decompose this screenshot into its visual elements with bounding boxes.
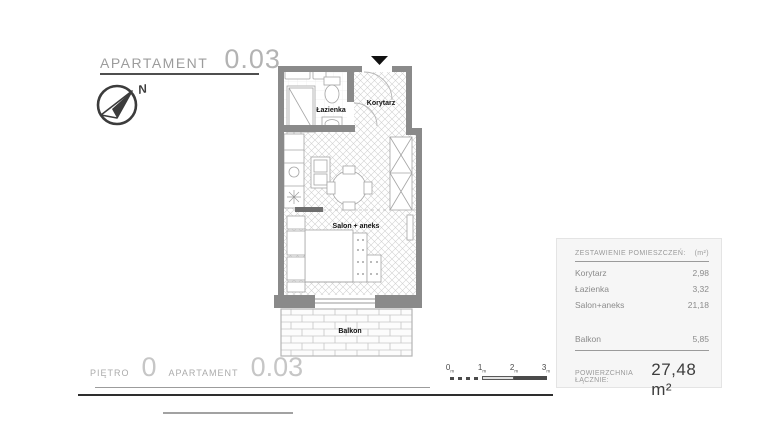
summary-header-label: ZESTAWIENIE POMIESZCZEŃ: — [575, 250, 686, 257]
row-value: 2,98 — [692, 268, 709, 278]
scale-tick-1: 1m — [475, 363, 489, 374]
footer-apartment-label: APARTAMENT — [169, 368, 239, 378]
summary-unit-header: (m²) — [695, 250, 709, 257]
wardrobe — [390, 137, 412, 210]
apartment-title: APARTAMENT 0.03 — [100, 44, 281, 75]
scale-segment-dark — [514, 376, 547, 380]
row-label: Balkon — [575, 334, 601, 344]
floor-plan: Łazienka Korytarz Salon + aneks Balkon — [265, 50, 465, 365]
row-value: 3,32 — [692, 284, 709, 294]
row-value: 5,85 — [692, 334, 709, 344]
summary-row-salon: Salon+aneks 21,18 — [575, 300, 709, 310]
total-label: POWIERZCHNIA ŁĄCZNIE: — [575, 370, 651, 384]
footer-apartment-value: 0.03 — [251, 352, 304, 383]
scale-tick-3: 3m — [539, 363, 553, 374]
scale-tick-0: 0m — [443, 363, 457, 374]
room-label-corridor: Korytarz — [367, 100, 396, 107]
scale-tick-2: 2m — [507, 363, 521, 374]
north-label: N — [137, 81, 149, 97]
balcony-window — [315, 299, 375, 303]
row-label: Korytarz — [575, 268, 607, 278]
summary-row-lazienka: Łazienka 3,32 — [575, 284, 709, 294]
summary-total: POWIERZCHNIA ŁĄCZNIE: 27,48 m² — [575, 360, 709, 400]
summary-row-korytarz: Korytarz 2,98 — [575, 268, 709, 278]
scale-segment-light — [482, 376, 514, 380]
room-label-bathroom: Łazienka — [316, 107, 346, 114]
footer-divider-thin — [95, 387, 430, 388]
footer-divider-thick — [78, 394, 553, 396]
stove-burner-icon — [287, 190, 301, 204]
north-compass-icon: N — [93, 78, 157, 130]
summary-header: ZESTAWIENIE POMIESZCZEŃ: (m²) — [575, 250, 709, 262]
tv-sideboard — [407, 215, 413, 240]
floor-value: 0 — [142, 352, 157, 383]
summary-row-balkon: Balkon 5,85 — [575, 334, 709, 351]
entrance-arrow-icon — [371, 56, 388, 65]
room-label-salon: Salon + aneks — [333, 223, 380, 230]
room-summary-panel: ZESTAWIENIE POMIESZCZEŃ: (m²) Korytarz 2… — [556, 238, 722, 388]
row-label: Łazienka — [575, 284, 609, 294]
kitchen-counter — [284, 134, 304, 208]
toilet — [324, 77, 340, 103]
floorplan-page: APARTAMENT 0.03 N — [0, 0, 760, 428]
room-label-balcony: Balkon — [338, 328, 361, 335]
apartment-title-label: APARTAMENT — [100, 55, 208, 71]
total-value: 27,48 m² — [651, 360, 709, 400]
row-value: 21,18 — [688, 300, 709, 310]
floor-label: PIĘTRO — [90, 368, 130, 378]
title-underline — [100, 73, 259, 75]
nightstand — [287, 216, 305, 229]
footer-info: PIĘTRO 0 APARTAMENT 0.03 — [90, 352, 303, 383]
scale-segment-dashed — [450, 377, 482, 380]
row-label: Salon+aneks — [575, 300, 624, 310]
footer-divider-short — [163, 412, 293, 414]
